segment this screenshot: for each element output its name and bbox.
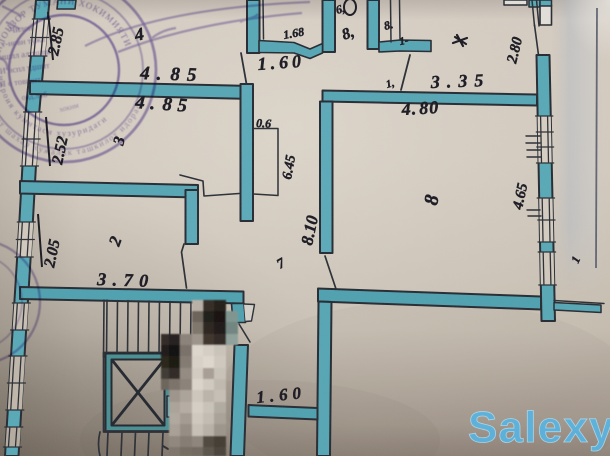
svg-text:Salexy: Salexy bbox=[468, 403, 610, 452]
